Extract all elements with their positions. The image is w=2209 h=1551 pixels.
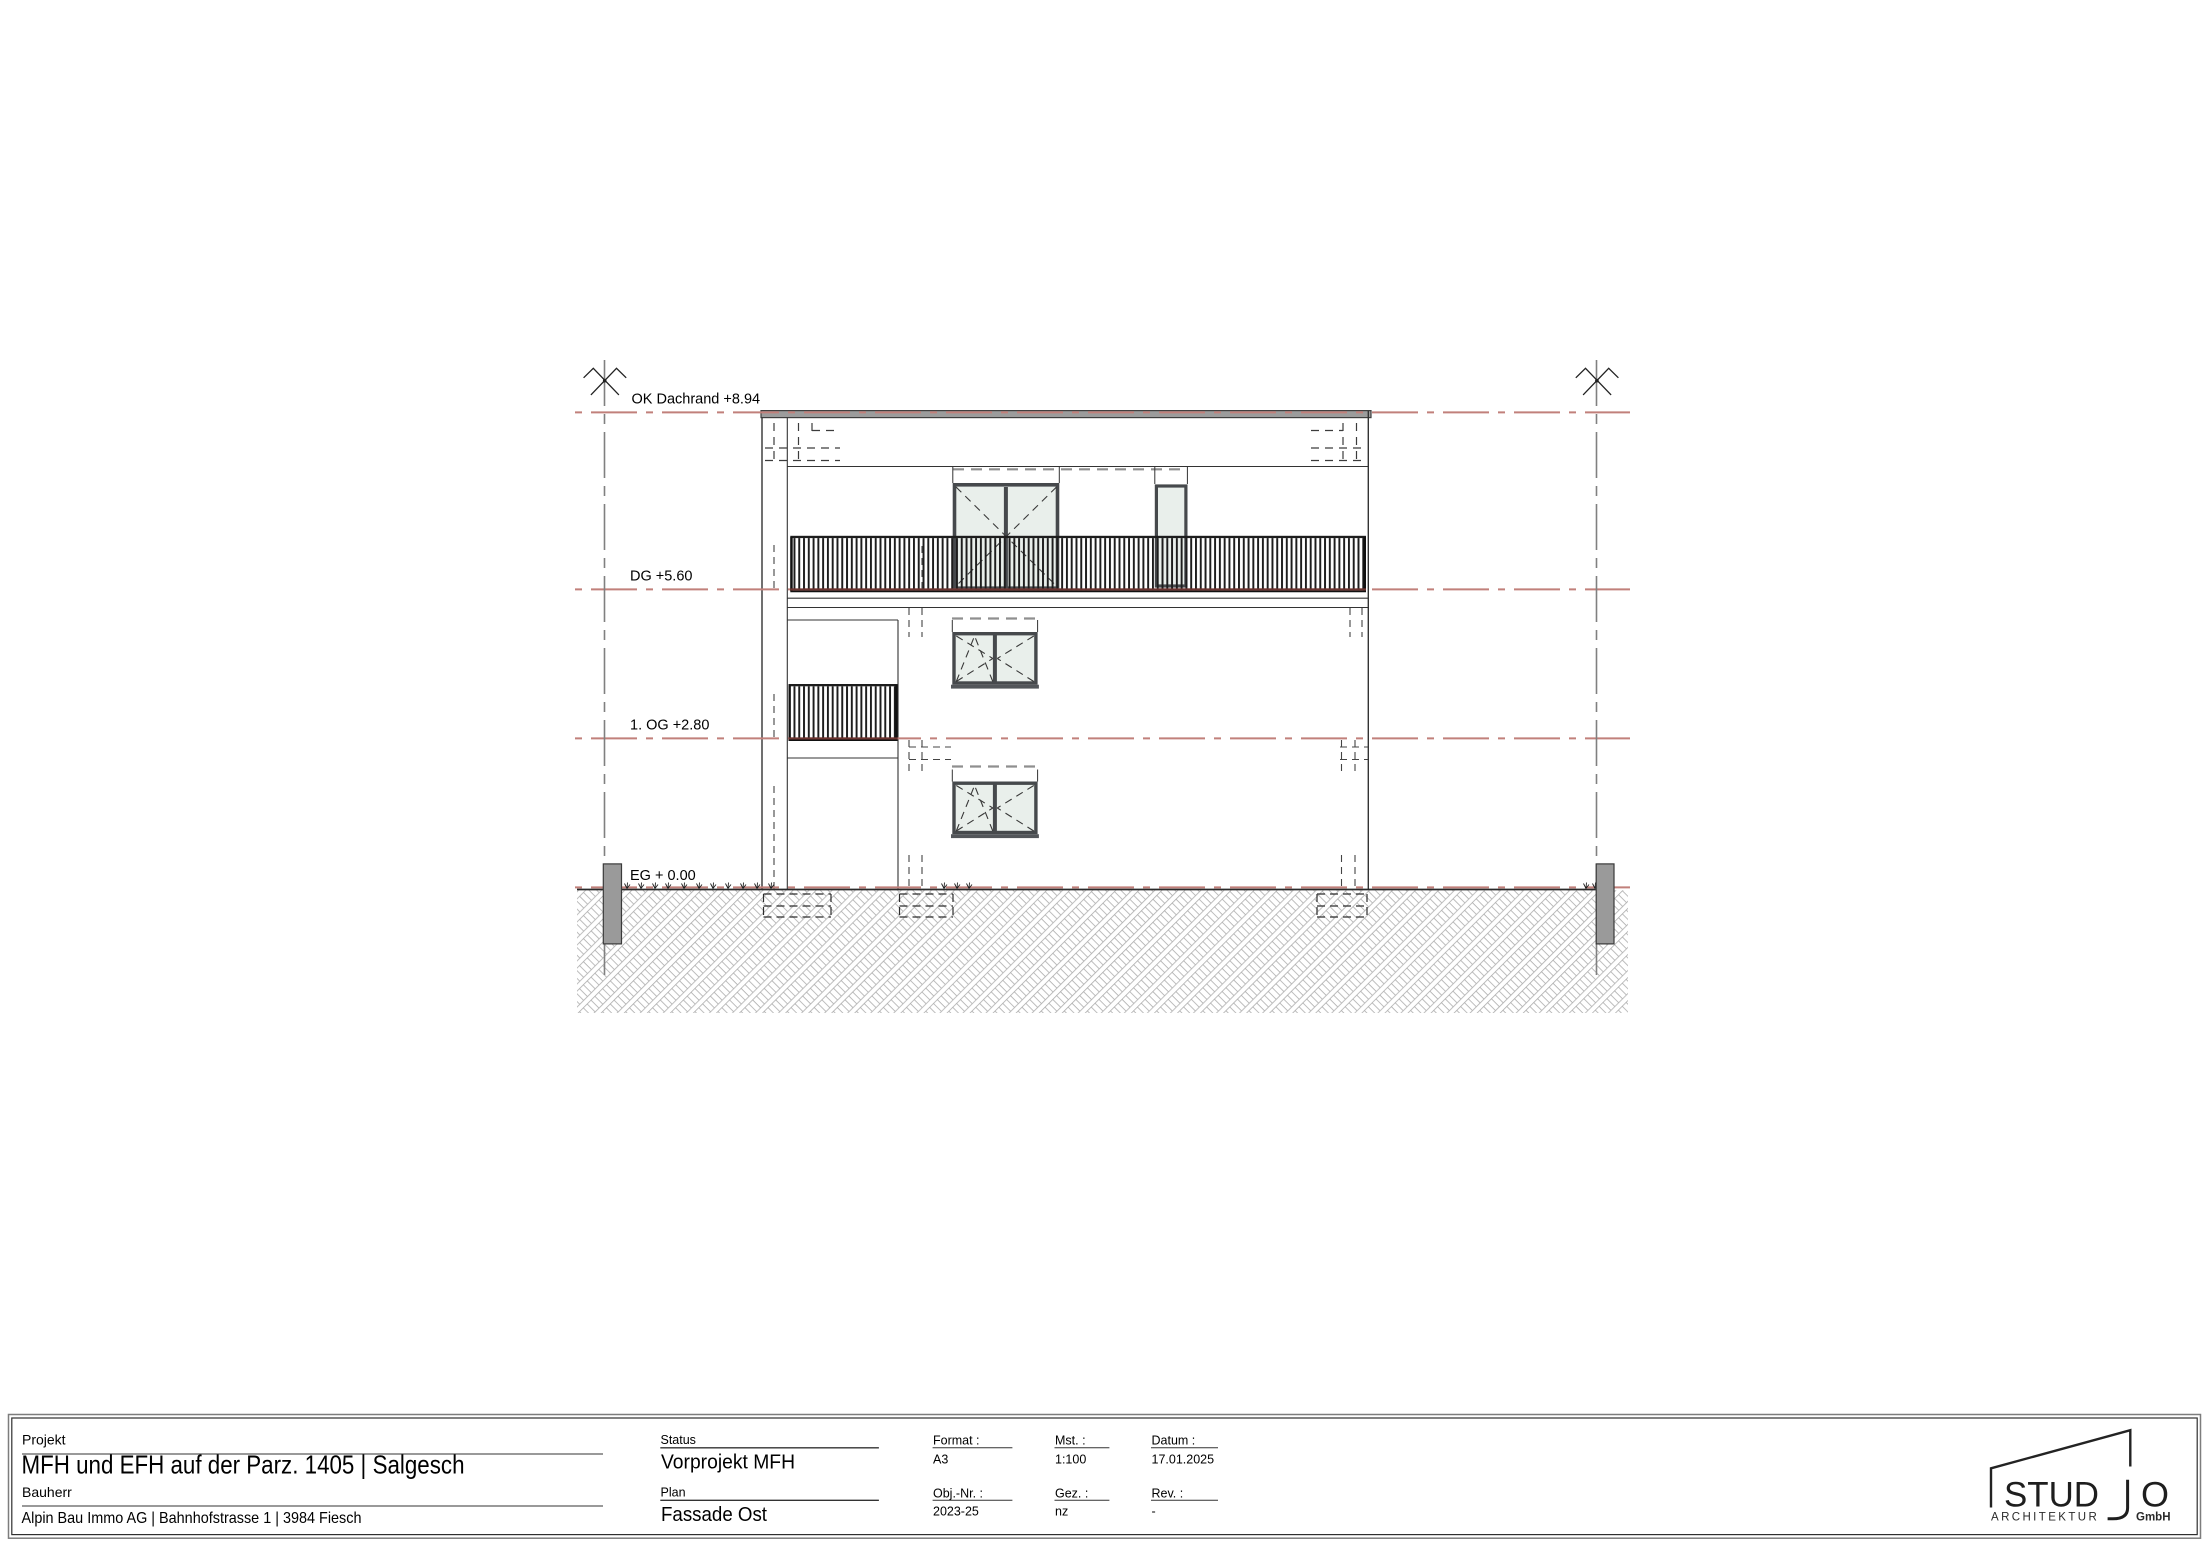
svg-text:Rev. :: Rev. : xyxy=(1152,1486,1184,1500)
svg-text:DG +5.60: DG +5.60 xyxy=(630,569,692,585)
svg-text:1:100: 1:100 xyxy=(1055,1452,1086,1466)
svg-text:2023-25: 2023-25 xyxy=(933,1504,979,1518)
svg-text:Gez. :: Gez. : xyxy=(1055,1486,1088,1500)
svg-text:Datum :: Datum : xyxy=(1152,1434,1196,1448)
svg-text:Status: Status xyxy=(661,1433,696,1447)
svg-text:17.01.2025: 17.01.2025 xyxy=(1152,1452,1215,1466)
svg-text:A3: A3 xyxy=(933,1452,948,1466)
svg-text:1. OG +2.80: 1. OG +2.80 xyxy=(630,718,709,734)
svg-text:Plan: Plan xyxy=(661,1486,686,1500)
svg-text:EG + 0.00: EG + 0.00 xyxy=(630,868,696,884)
svg-text:OK Dachrand +8.94: OK Dachrand +8.94 xyxy=(632,392,761,408)
svg-text:O: O xyxy=(2141,1475,2169,1514)
svg-text:Bauherr: Bauherr xyxy=(22,1484,72,1500)
svg-text:STUD: STUD xyxy=(2004,1475,2099,1514)
svg-text:Fassade Ost: Fassade Ost xyxy=(661,1503,767,1526)
svg-text:GmbH: GmbH xyxy=(2136,1512,2171,1524)
svg-text:nz: nz xyxy=(1055,1504,1068,1518)
svg-text:-: - xyxy=(1152,1504,1156,1518)
svg-text:MFH und EFH auf der Parz. 1405: MFH und EFH auf der Parz. 1405 | Salgesc… xyxy=(22,1450,465,1480)
svg-text:Alpin Bau Immo AG | Bahnhofstr: Alpin Bau Immo AG | Bahnhofstrasse 1 | 3… xyxy=(22,1510,362,1527)
svg-text:Mst. :: Mst. : xyxy=(1055,1434,1086,1448)
svg-text:ARCHITEKTUR: ARCHITEKTUR xyxy=(1991,1512,2099,1524)
svg-text:Vorprojekt MFH: Vorprojekt MFH xyxy=(661,1451,795,1474)
svg-text:Projekt: Projekt xyxy=(22,1432,66,1448)
svg-text:Format :: Format : xyxy=(933,1434,980,1448)
svg-text:Obj.-Nr. :: Obj.-Nr. : xyxy=(933,1486,983,1500)
